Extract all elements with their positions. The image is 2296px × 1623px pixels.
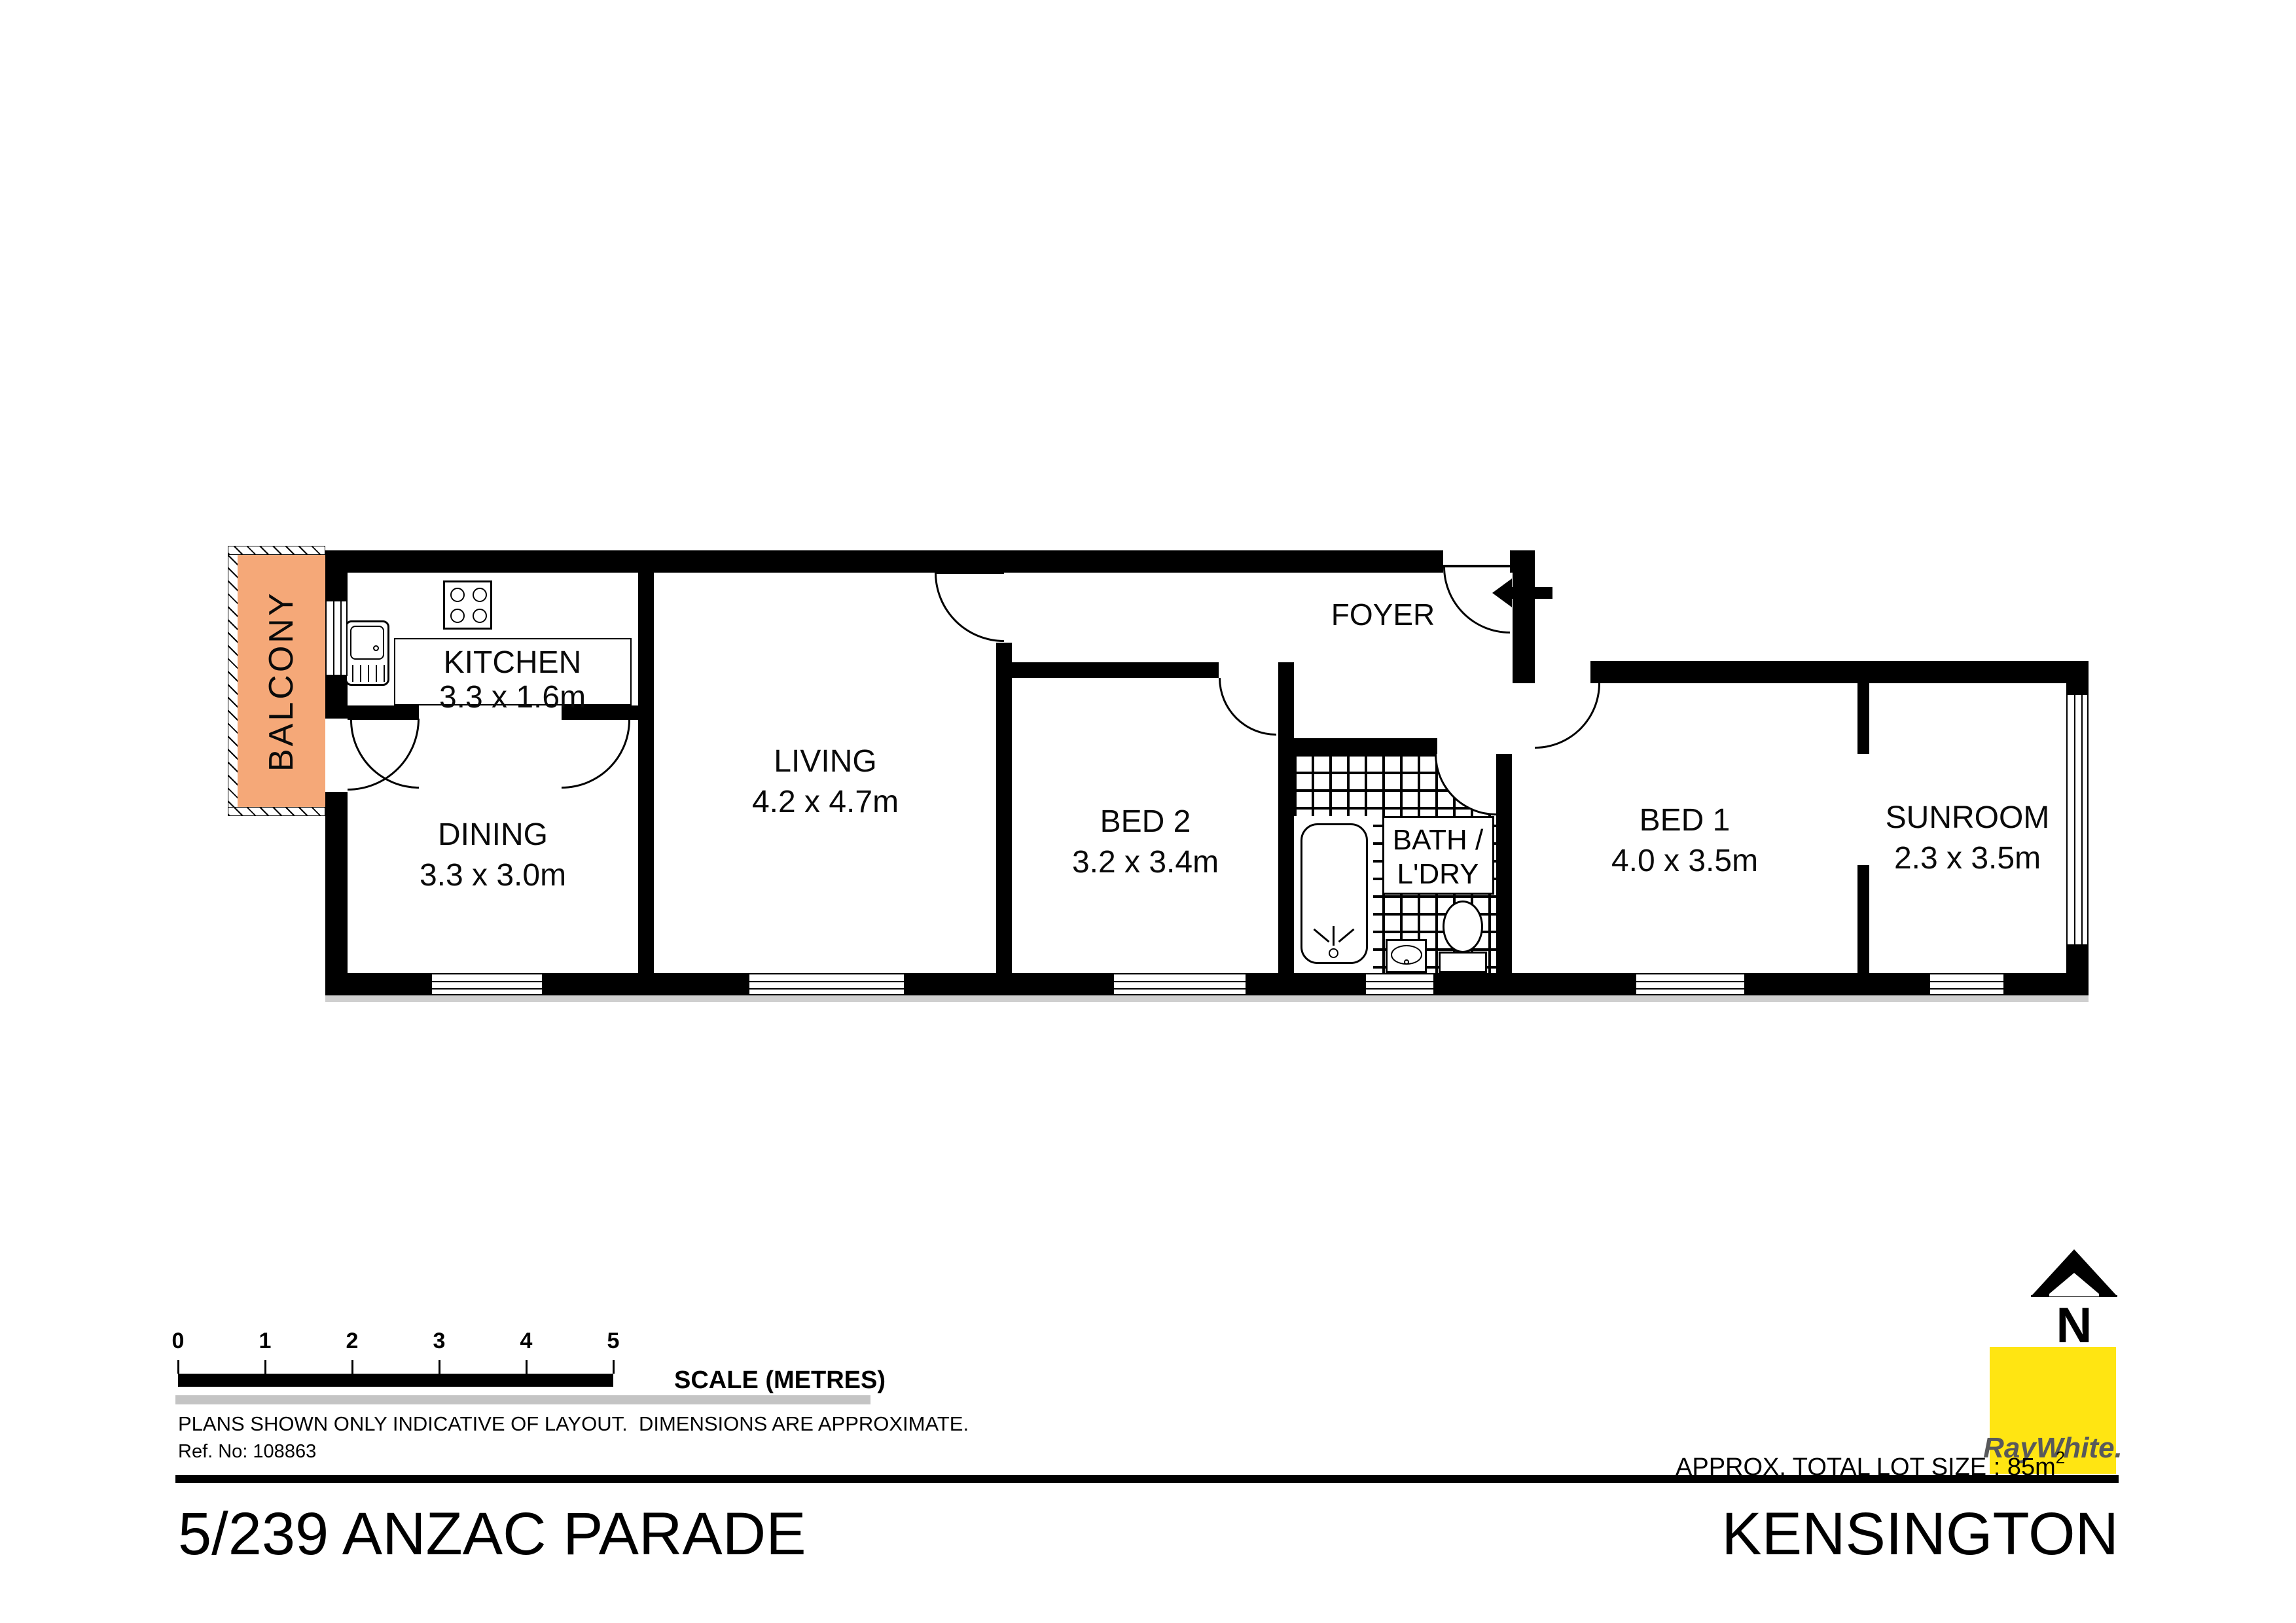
wall-bath-top xyxy=(1294,738,1437,754)
shower-spray-line-mid xyxy=(1333,926,1335,946)
scale-tick-4 xyxy=(526,1360,528,1374)
kitchen-sink-drain xyxy=(373,645,379,651)
scale-tick-label-0: 0 xyxy=(172,1329,185,1354)
balcony-hatch-left xyxy=(228,546,238,816)
stove-burner-4 xyxy=(473,609,487,623)
wall-bed2-top xyxy=(1012,662,1219,678)
living-window xyxy=(748,973,905,995)
scale-tick-label-3: 3 xyxy=(433,1329,446,1354)
scale-tick-label-4: 4 xyxy=(520,1329,533,1354)
balcony-hatch-bottom xyxy=(228,807,325,816)
sink-drainboard-line-1 xyxy=(352,665,353,682)
bed1-label: BED 1 xyxy=(1640,802,1731,838)
sink-drainboard-line-3 xyxy=(368,665,369,682)
shower-drain-icon xyxy=(1329,948,1338,958)
scale-tick-label-1: 1 xyxy=(259,1329,272,1354)
stove xyxy=(443,580,492,630)
sink-drainboard-line-5 xyxy=(384,665,385,682)
foyer-label: FOYER xyxy=(1331,597,1435,632)
bed2-window xyxy=(1113,973,1247,995)
stove-burner-1 xyxy=(450,588,465,602)
wall-kitchen-dining-left xyxy=(348,705,419,720)
scale-tick-label-2: 2 xyxy=(346,1329,359,1354)
stove-burner-2 xyxy=(473,588,487,602)
bed1-door-arc xyxy=(1535,683,1600,749)
sink-drainboard-line-2 xyxy=(360,665,361,682)
wall-left-c xyxy=(325,792,348,995)
scale-tick-5 xyxy=(613,1360,615,1374)
dining-window xyxy=(431,973,543,995)
north-letter: N xyxy=(2056,1297,2092,1354)
dining-label: DINING xyxy=(438,817,548,853)
balcony-label: BALCONY xyxy=(238,555,325,807)
wall-left-b xyxy=(325,676,348,719)
sunroom-window-right xyxy=(2066,694,2089,946)
bath-label-line1: BATH / xyxy=(1393,823,1484,857)
ref-number: Ref. No: 108863 xyxy=(178,1441,316,1463)
scale-tick-0 xyxy=(177,1360,179,1374)
sunroom-window-bottom xyxy=(1929,973,2005,995)
stove-burner-3 xyxy=(450,609,465,623)
address-title: 5/239 ANZAC PARADE xyxy=(178,1500,806,1569)
kitchen-dims: 3.3 x 1.6m xyxy=(439,679,586,715)
bath-window xyxy=(1365,973,1435,995)
wall-top-main xyxy=(330,550,1443,573)
bed2-dims: 3.2 x 3.4m xyxy=(1072,844,1219,880)
north-arrow-icon xyxy=(2027,1247,2121,1299)
wall-bed1-sunroom-top xyxy=(1857,683,1869,754)
toilet-bowl xyxy=(1443,901,1483,953)
wall-top-rightwing xyxy=(1590,661,2089,683)
living-label: LIVING xyxy=(774,743,876,779)
wall-living-bed2 xyxy=(996,643,1012,973)
wall-bed2-bath xyxy=(1278,662,1294,973)
toilet-tank xyxy=(1439,952,1487,973)
living-door-arc xyxy=(935,573,1004,642)
wall-dining-living xyxy=(638,573,654,973)
scale-bar-black xyxy=(178,1374,613,1387)
scale-tick-3 xyxy=(439,1360,440,1374)
wall-bath-right xyxy=(1496,754,1512,973)
scale-tick-1 xyxy=(264,1360,266,1374)
scale-tick-label-5: 5 xyxy=(607,1329,620,1354)
kitchen-sink-bowl xyxy=(350,626,384,660)
kitchen-label: KITCHEN xyxy=(444,645,582,681)
kitchen-window xyxy=(325,600,348,676)
bed2-door-arc xyxy=(1219,678,1276,736)
sunroom-dims: 2.3 x 3.5m xyxy=(1894,840,2041,876)
dining-dims: 3.3 x 3.0m xyxy=(420,857,566,893)
suburb-title: KENSINGTON xyxy=(1721,1500,2119,1569)
wall-bottom-shadow xyxy=(325,995,2089,1002)
bed1-window xyxy=(1635,973,1746,995)
balcony-hatch-top xyxy=(228,546,325,555)
living-dims: 4.2 x 4.7m xyxy=(752,784,899,820)
bath-label: BATH / L'DRY xyxy=(1393,823,1484,891)
wall-entry-stub xyxy=(1513,567,1535,683)
sunroom-label: SUNROOM xyxy=(1886,800,2050,836)
disclaimer-text: PLANS SHOWN ONLY INDICATIVE OF LAYOUT. D… xyxy=(178,1412,969,1436)
bed2-label: BED 2 xyxy=(1100,804,1191,840)
bath-label-line2: L'DRY xyxy=(1393,857,1484,891)
footer-rule xyxy=(175,1475,2119,1483)
scale-bar-gray xyxy=(175,1395,870,1404)
scale-bar-label: SCALE (METRES) xyxy=(674,1366,886,1395)
bath-sink-drain xyxy=(1404,959,1409,965)
scale-tick-2 xyxy=(351,1360,353,1374)
sink-drainboard-line-4 xyxy=(376,665,377,682)
bed1-dims: 4.0 x 3.5m xyxy=(1611,843,1758,879)
wall-bed1-sunroom-bottom xyxy=(1857,865,1869,973)
kitchen-door-right-arc xyxy=(562,720,630,789)
lot-size-sup: 2 xyxy=(2056,1448,2065,1467)
wall-left-a xyxy=(325,550,348,600)
